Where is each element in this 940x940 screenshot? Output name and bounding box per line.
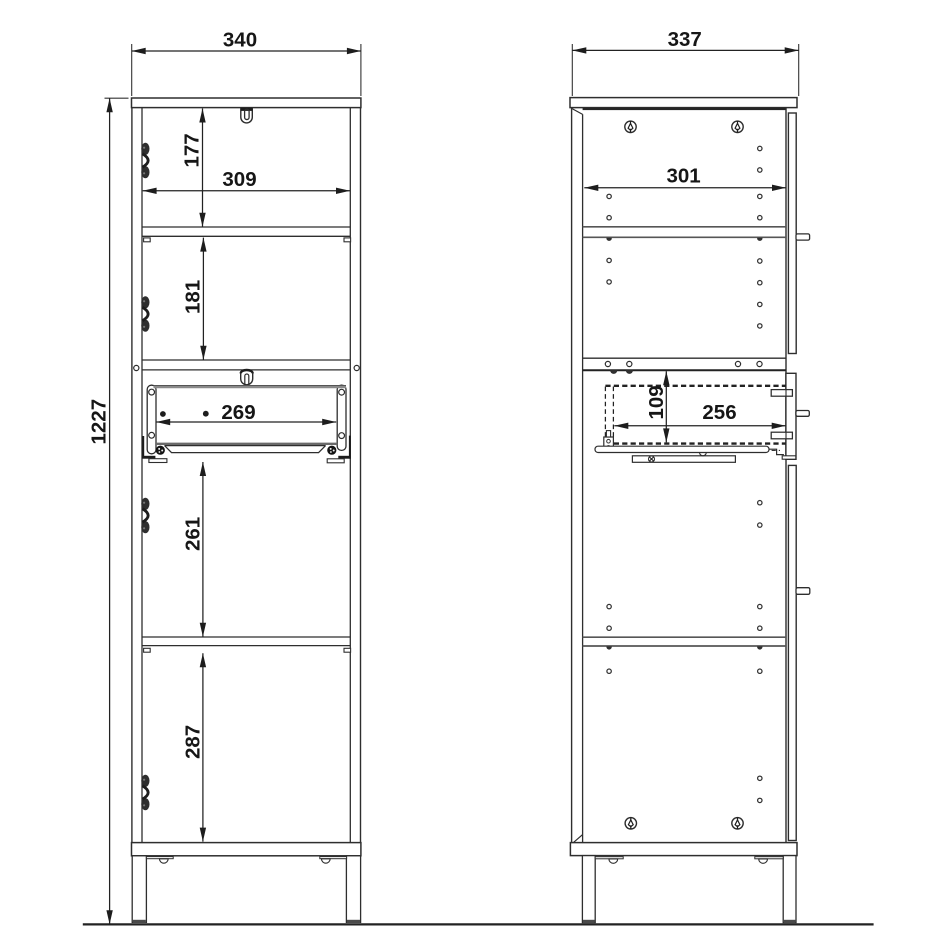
svg-text:337: 337: [668, 28, 702, 51]
svg-text:256: 256: [702, 401, 736, 424]
svg-text:301: 301: [666, 165, 700, 188]
svg-text:269: 269: [221, 401, 255, 424]
svg-text:340: 340: [223, 29, 257, 52]
svg-text:109: 109: [645, 385, 668, 419]
svg-text:177: 177: [181, 133, 204, 167]
svg-text:261: 261: [182, 517, 205, 551]
svg-text:287: 287: [182, 725, 205, 759]
svg-text:181: 181: [181, 280, 204, 314]
svg-text:309: 309: [222, 168, 256, 191]
svg-text:1227: 1227: [88, 399, 111, 445]
